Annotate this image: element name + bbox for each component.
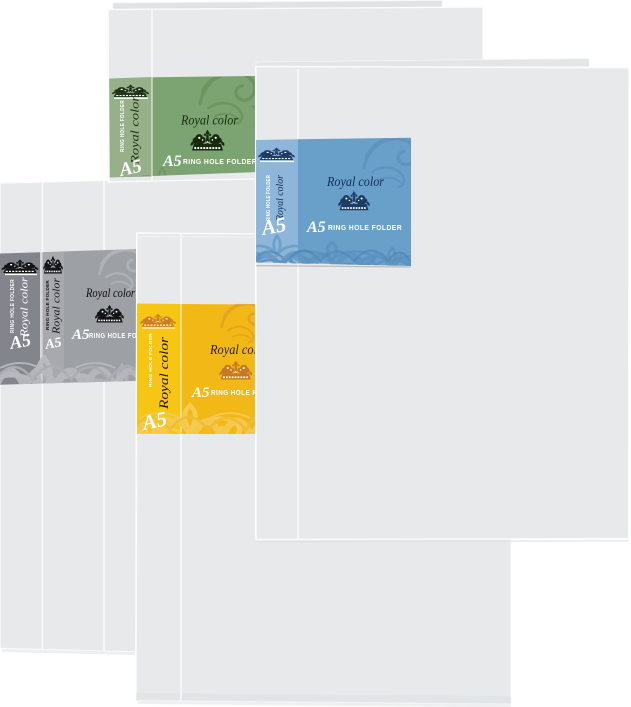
svg-text:RING HOLE FOLDER: RING HOLE FOLDER — [10, 279, 16, 333]
svg-text:Royal color: Royal color — [326, 175, 384, 190]
svg-text:Royal color: Royal color — [128, 96, 142, 166]
svg-text:Royal color: Royal color — [85, 285, 136, 300]
svg-text:RING HOLE FOLDER: RING HOLE FOLDER — [183, 157, 257, 166]
svg-text:RING HOLE FOLDER: RING HOLE FOLDER — [45, 280, 51, 330]
svg-text:A5: A5 — [71, 327, 90, 343]
svg-text:A5: A5 — [306, 219, 326, 236]
svg-text:A5: A5 — [162, 153, 182, 170]
svg-text:Royal color: Royal color — [157, 337, 171, 410]
svg-text:A5: A5 — [43, 335, 63, 353]
svg-text:A5: A5 — [258, 212, 288, 240]
svg-text:A5: A5 — [7, 330, 32, 354]
svg-text:A5: A5 — [191, 385, 210, 401]
svg-text:RING HOLE FOLDER: RING HOLE FOLDER — [328, 223, 402, 232]
svg-text:Royal color: Royal color — [180, 113, 239, 128]
svg-text:Royal color: Royal color — [52, 277, 63, 335]
svg-text:RING HOLE FOLDER: RING HOLE FOLDER — [120, 100, 126, 152]
svg-text:Royal color: Royal color — [20, 276, 31, 338]
svg-text:RING HOLE FOLDER: RING HOLE FOLDER — [148, 333, 153, 387]
svg-text:RING HOLE FOL: RING HOLE FOL — [89, 331, 141, 340]
